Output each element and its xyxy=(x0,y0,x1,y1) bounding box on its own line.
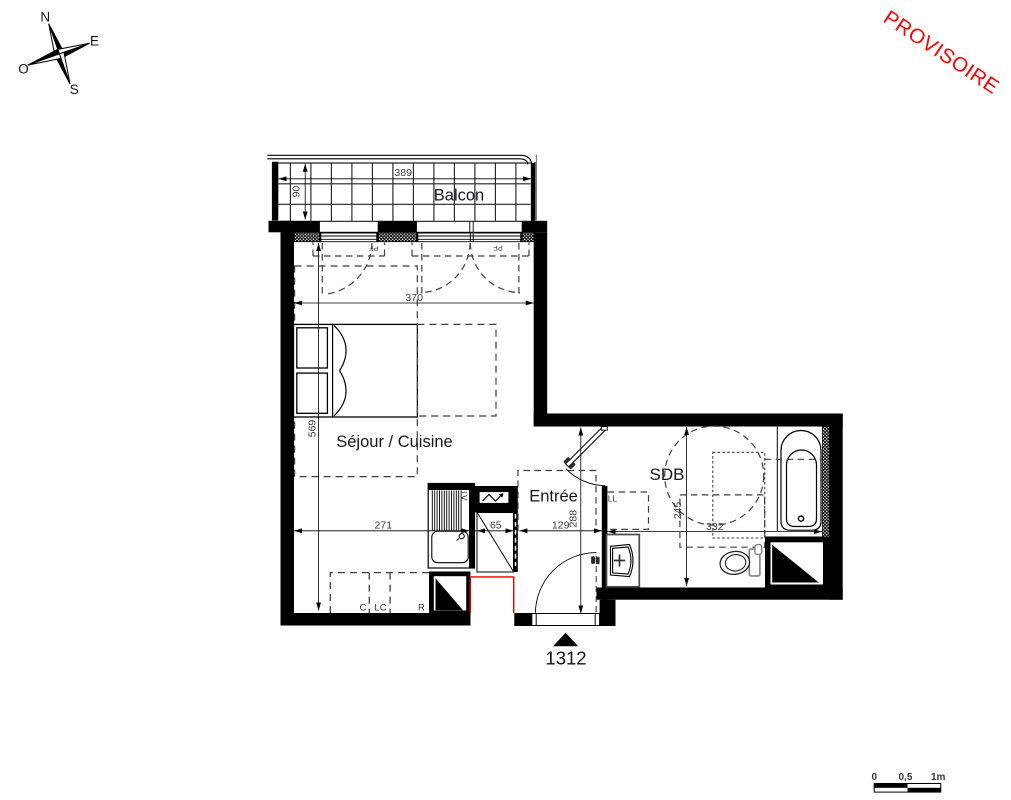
svg-text:332: 332 xyxy=(706,521,724,533)
svg-text:C: C xyxy=(359,603,366,614)
svg-text:LC: LC xyxy=(374,603,386,614)
svg-text:245: 245 xyxy=(672,502,684,520)
svg-text:271: 271 xyxy=(375,519,393,531)
svg-text:288: 288 xyxy=(568,510,580,528)
svg-text:1312: 1312 xyxy=(545,648,586,669)
svg-text:LV: LV xyxy=(459,491,468,501)
svg-text:Balcon: Balcon xyxy=(434,186,484,204)
svg-text:SDB: SDB xyxy=(650,465,685,484)
svg-text:O: O xyxy=(18,62,29,77)
svg-text:PF: PF xyxy=(368,244,378,253)
svg-text:Séjour / Cuisine: Séjour / Cuisine xyxy=(336,433,452,451)
svg-text:LL: LL xyxy=(608,494,618,504)
svg-text:0,5: 0,5 xyxy=(899,772,913,783)
svg-text:R: R xyxy=(418,603,425,614)
svg-text:370: 370 xyxy=(405,292,423,304)
svg-text:E: E xyxy=(90,33,99,48)
svg-text:N: N xyxy=(40,10,50,25)
svg-text:1m: 1m xyxy=(931,772,946,783)
svg-text:PF: PF xyxy=(493,243,503,252)
svg-text:569: 569 xyxy=(306,420,318,438)
svg-text:90: 90 xyxy=(291,186,303,198)
svg-text:65: 65 xyxy=(490,519,502,531)
svg-text:0: 0 xyxy=(872,772,878,783)
svg-text:PROVISOIRE: PROVISOIRE xyxy=(879,6,1003,99)
svg-text:Entrée: Entrée xyxy=(529,488,578,506)
svg-text:389: 389 xyxy=(394,167,412,179)
svg-text:S: S xyxy=(70,82,79,97)
